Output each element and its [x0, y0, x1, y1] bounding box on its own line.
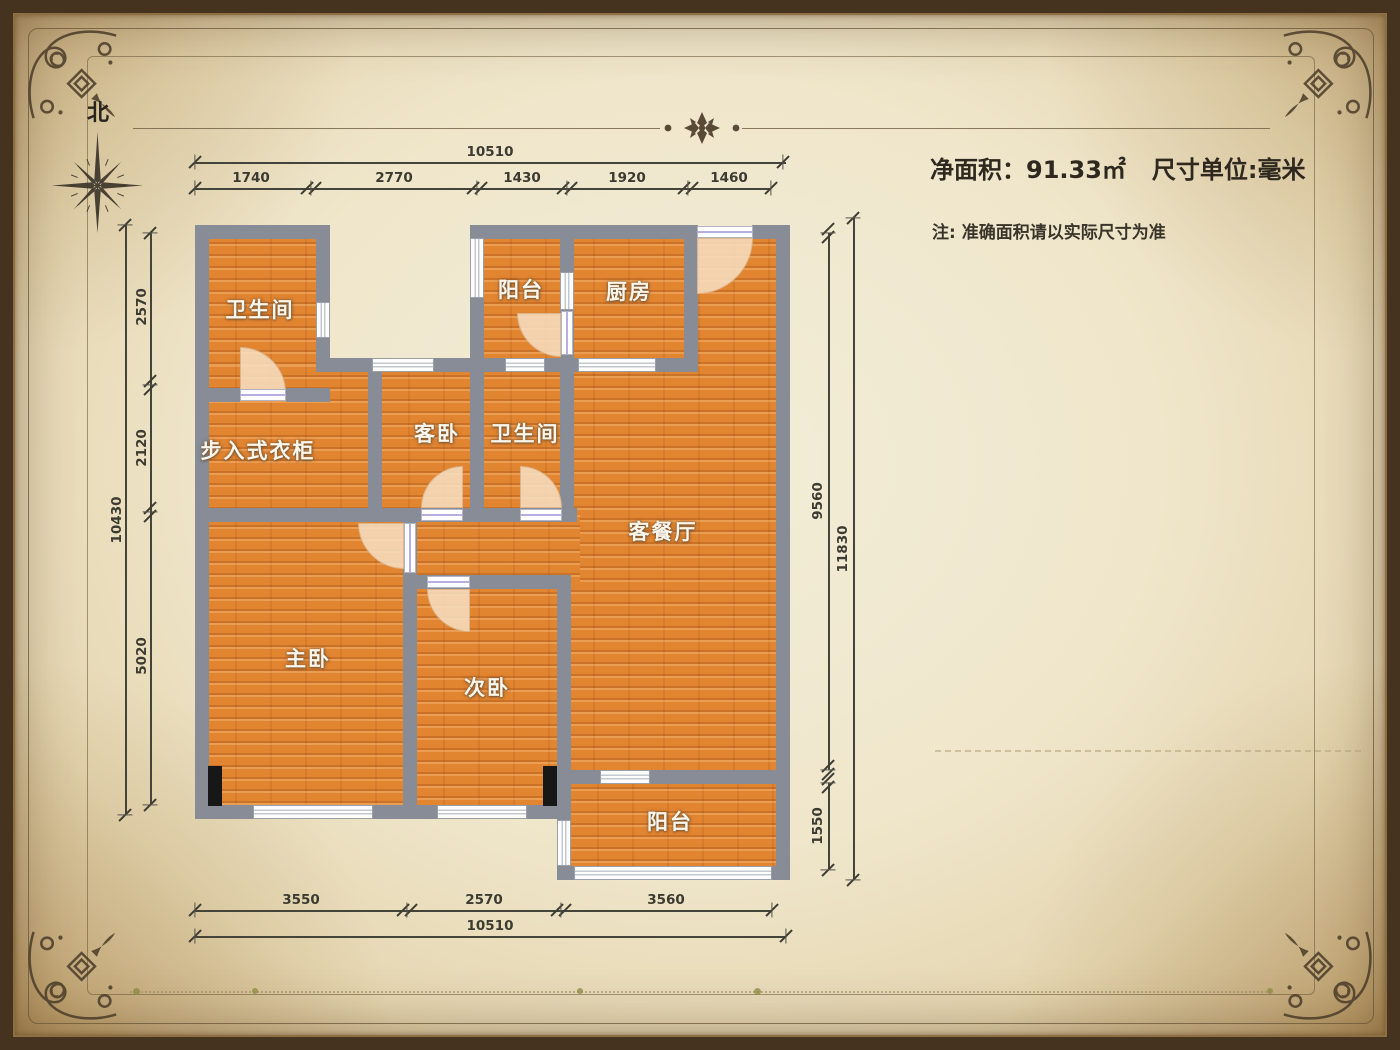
dim-extension	[194, 181, 195, 196]
wall-top-right-a	[470, 225, 697, 239]
top-divider-line	[742, 128, 1270, 129]
dim-label-bottom-total: 10510	[467, 918, 514, 934]
dim-extension	[194, 155, 195, 170]
door-leaf	[561, 311, 573, 355]
dim-label-top-2: 2770	[375, 170, 413, 186]
deco-dot	[577, 988, 583, 994]
door-leaf	[240, 389, 286, 401]
dim-extension	[118, 224, 133, 225]
corner-ornament-icon	[1280, 26, 1376, 122]
corner-ornament-icon	[1280, 928, 1376, 1024]
dim-line-right-1550	[828, 783, 830, 870]
dim-extension	[143, 511, 158, 512]
window	[372, 358, 434, 372]
dim-label-left-total: 10430	[109, 497, 125, 544]
dim-label-bottom-2: 2570	[465, 892, 503, 908]
wall-top-left	[195, 225, 330, 239]
right-dashed-line	[935, 750, 1361, 752]
room-floor-living-dining	[560, 232, 783, 777]
title-block: 净面积： 91.33㎡ 尺寸单位:毫米	[930, 150, 1306, 185]
door-leaf	[697, 226, 753, 238]
deco-dot	[754, 988, 761, 995]
room-label-living-dining: 客餐厅	[629, 516, 698, 546]
deco-dot	[1267, 988, 1273, 994]
wall-bathroom1-right	[316, 225, 330, 372]
wall-guest-left	[368, 358, 382, 522]
dim-line-right-9560	[828, 233, 830, 770]
dim-extension	[476, 181, 477, 196]
door-leaf	[520, 509, 562, 521]
dim-label-top-1: 1740	[232, 170, 270, 186]
dim-label-top-5: 1460	[710, 170, 748, 186]
dim-line-top-total	[195, 162, 786, 164]
dim-label-bottom-3: 3560	[647, 892, 685, 908]
wall-bathroom1-bottom-b	[286, 388, 330, 402]
wall-balcony-top-edge	[557, 770, 790, 784]
deco-dot	[133, 988, 140, 995]
dim-extension	[821, 769, 836, 770]
dim-label-top-total: 10510	[467, 144, 514, 160]
window	[253, 805, 373, 819]
dim-extension	[770, 181, 771, 196]
dim-extension	[821, 232, 836, 233]
wall-right	[776, 225, 790, 880]
dim-line-right-11830	[853, 218, 855, 880]
window	[470, 238, 484, 298]
dim-label-top-3: 1430	[503, 170, 541, 186]
door-leaf	[427, 576, 470, 588]
dim-line-bottom-total	[195, 936, 786, 938]
top-divider-ornament-icon	[660, 110, 744, 146]
dim-extension	[566, 181, 567, 196]
dim-label-left-2: 2120	[134, 429, 150, 467]
window	[574, 866, 772, 880]
room-label-guest-bedroom: 客卧	[414, 418, 460, 448]
window	[316, 302, 330, 338]
dim-extension	[118, 814, 133, 815]
dim-extension	[406, 903, 407, 918]
corner-ornament-icon	[24, 928, 120, 1024]
wall-mid-divider	[560, 225, 574, 522]
top-divider-line	[133, 128, 660, 129]
window	[437, 805, 527, 819]
dim-extension	[846, 879, 861, 880]
compass-rose-icon	[40, 128, 155, 243]
dim-label-left-3: 5020	[134, 637, 150, 675]
area-label: 净面积：	[930, 150, 1026, 185]
door-leaf	[404, 523, 416, 573]
dim-extension	[560, 903, 561, 918]
dim-extension	[771, 903, 772, 918]
dim-extension	[846, 217, 861, 218]
room-label-balcony-top: 阳台	[498, 274, 544, 304]
door-leaf	[421, 509, 463, 521]
dim-line-bottom-segments	[195, 910, 772, 912]
dim-line-left-total	[125, 225, 127, 815]
room-label-walkin-closet: 步入式衣柜	[201, 435, 316, 465]
dim-label-right-11830: 11830	[835, 526, 851, 573]
room-label-bathroom-1: 卫生间	[226, 294, 295, 324]
dim-extension	[785, 929, 786, 944]
floorplan-canvas: 北	[0, 0, 1400, 1050]
dim-label-right-1550: 1550	[810, 807, 826, 845]
room-label-kitchen: 厨房	[606, 276, 652, 306]
area-value: 91.33㎡	[1026, 150, 1126, 185]
dim-extension	[782, 155, 783, 170]
column	[208, 766, 222, 806]
room-label-balcony-bottom: 阳台	[647, 806, 693, 836]
north-label: 北	[87, 95, 109, 127]
area-note: 注: 准确面积请以实际尺寸为准	[932, 218, 1166, 243]
dim-label-top-4: 1920	[608, 170, 646, 186]
dim-label-left-1: 2570	[134, 288, 150, 326]
balcony-door	[600, 770, 650, 784]
dim-extension	[821, 869, 836, 870]
dim-extension	[821, 782, 836, 783]
wall-kitchen-right	[684, 225, 698, 372]
dim-label-bottom-1: 3550	[282, 892, 320, 908]
window	[560, 272, 574, 310]
bottom-dotted-line	[130, 991, 1270, 993]
dim-extension	[143, 232, 158, 233]
dim-extension	[194, 929, 195, 944]
window	[557, 820, 571, 866]
dim-line-left-segments	[150, 233, 152, 805]
dim-label-right-9560: 9560	[810, 482, 826, 520]
wall-left	[195, 225, 209, 819]
deco-dot	[252, 988, 258, 994]
room-label-master-bedroom: 主卧	[285, 643, 331, 673]
unit-label: 尺寸单位:毫米	[1152, 150, 1306, 185]
dim-extension	[687, 181, 688, 196]
room-label-bathroom-2: 卫生间	[491, 418, 560, 448]
room-floor-hallway	[410, 515, 580, 582]
dim-extension	[310, 181, 311, 196]
kitchen-sliding-door	[578, 358, 656, 372]
room-label-second-bedroom: 次卧	[464, 672, 510, 702]
window	[505, 358, 545, 372]
dim-extension	[143, 804, 158, 805]
dim-extension	[194, 903, 195, 918]
dim-extension	[143, 384, 158, 385]
column	[543, 766, 557, 806]
